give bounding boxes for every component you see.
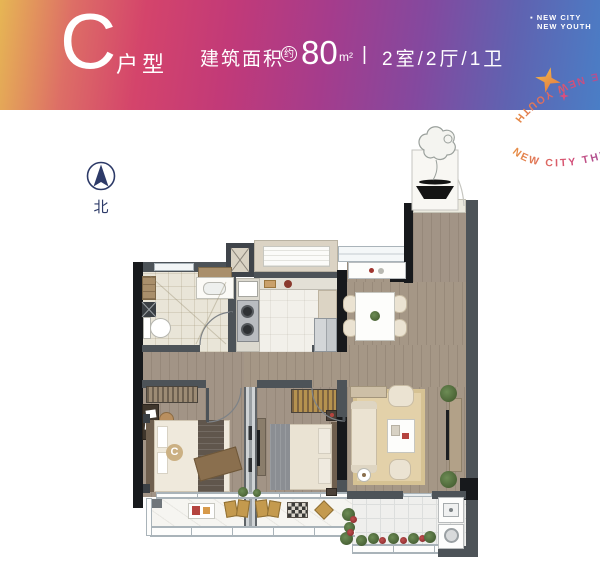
north-compass-icon (84, 158, 118, 196)
area-label: 建筑面积 (200, 44, 284, 71)
separator: | (362, 44, 367, 66)
unit-type-label: 户型 (116, 47, 168, 79)
shower-diagonal (196, 282, 226, 344)
tagline-line2: NEW YOUTH (530, 22, 592, 31)
bathroom-door-arc (200, 312, 233, 345)
compass-north-label: 北 (84, 196, 118, 217)
statue-table-top (419, 180, 451, 185)
room-layout-text: 2室/2厅/1卫 (382, 44, 505, 71)
plan-overlay (128, 120, 492, 570)
unit-letter: C (60, 0, 116, 82)
tagline: ▪ NEW CITY NEW YOUTH (530, 13, 592, 31)
poster-page: C 户型 建筑面积 约 80 m² | 2室/2厅/1卫 ▪ NEW CITY … (0, 0, 600, 583)
partition-handle (249, 426, 253, 440)
shower-diagonal (150, 276, 226, 344)
area-unit: m² (339, 50, 353, 64)
bedroom2-door-arc (312, 388, 345, 421)
tagline-line1: ▪ NEW CITY (530, 13, 592, 22)
partition-handle (249, 458, 253, 472)
approx-badge: 约 (281, 46, 297, 62)
tagline-bullet: ▪ (530, 13, 534, 22)
ring-logo: NEW CITY THE NEW YOUTH NEW CITY THE NEW … (488, 52, 600, 184)
area-value: 80 (301, 36, 338, 69)
bedroom1-door-arc (207, 388, 241, 422)
